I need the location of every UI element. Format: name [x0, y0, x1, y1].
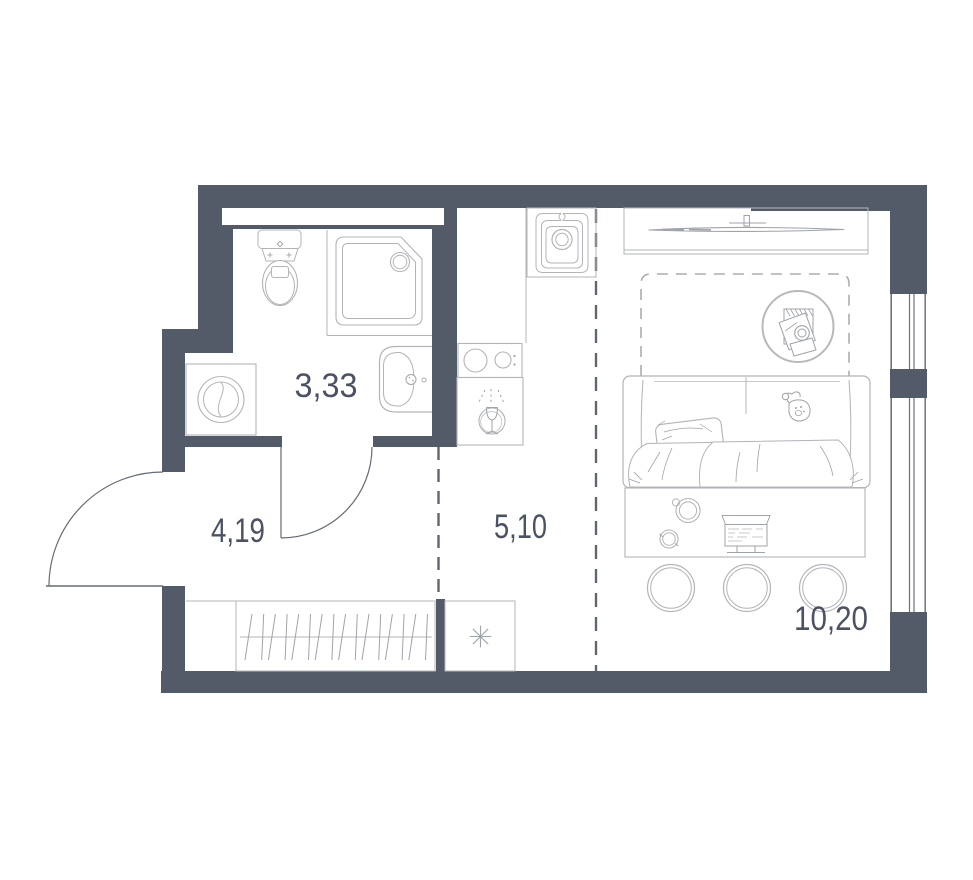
svg-text:3,33: 3,33	[295, 367, 358, 405]
svg-text:4,19: 4,19	[211, 512, 265, 550]
svg-text:10,20: 10,20	[794, 600, 868, 638]
svg-text:5,10: 5,10	[494, 508, 547, 546]
